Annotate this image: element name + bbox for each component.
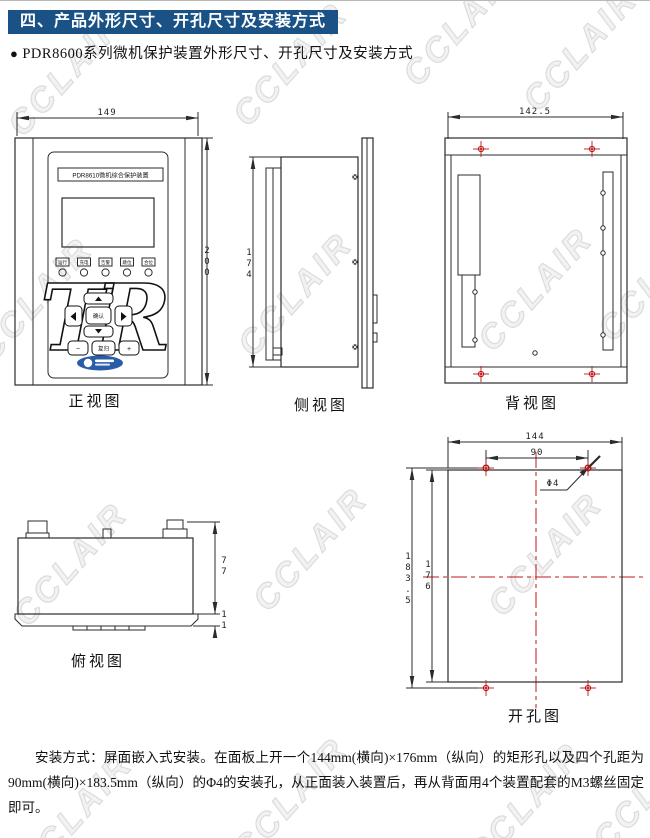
intro-text: PDR8600系列微机保护装置外形尺寸、开孔尺寸及安装方式 (22, 46, 413, 62)
dim-77-label: 77 (219, 556, 228, 578)
brand-emblem-icon (84, 359, 92, 367)
top-view-drawing (15, 505, 240, 640)
panel-cutout-rect (448, 470, 622, 682)
led-label-5: 合位 (144, 259, 153, 266)
terminal-block-left (26, 521, 49, 538)
centerlines (423, 452, 647, 708)
side-view-drawing (245, 130, 385, 392)
terminal-cutout-right (601, 172, 613, 350)
device-body (18, 538, 193, 614)
mount-hole-icon (584, 366, 600, 382)
dimension-depth-77 (187, 522, 220, 614)
cutout-figure: 144 90 Φ4 (395, 428, 650, 725)
intro-line: ●PDR8600系列微机保护装置外形尺寸、开孔尺寸及安装方式 (10, 42, 413, 63)
mounting-clip (373, 333, 377, 342)
cutout-view-label: 开孔图 (455, 705, 615, 726)
terminal-block-right (163, 520, 187, 538)
dim-176-label: 176 (423, 560, 432, 593)
terminal-cutout-left (458, 175, 480, 347)
front-bezel (15, 614, 198, 626)
led-label-1: 运行 (58, 259, 67, 266)
dim-90-label: 90 (531, 448, 544, 458)
top-view-figure (15, 505, 240, 645)
device-body (281, 157, 358, 367)
dim-149-label: 149 (97, 108, 116, 118)
page-top-rule (0, 0, 650, 1)
dim-144-label: 144 (525, 432, 544, 442)
side-view-label: 侧视图 (251, 394, 391, 415)
dim-142-5-label: 142.5 (519, 107, 551, 117)
back-view-label: 背视图 (432, 392, 632, 413)
ground-hole (533, 351, 537, 355)
bullet-icon: ● (10, 46, 18, 61)
side-view-figure (245, 130, 385, 397)
screw-icon (352, 344, 357, 349)
screw-icon (352, 174, 357, 179)
dim-11-label: 11 (219, 610, 228, 632)
section-title-banner: 四、产品外形尺寸、开孔尺寸及安装方式 (8, 10, 338, 34)
plus-key-label: + (127, 346, 131, 353)
mount-hole-icon (473, 366, 489, 382)
led-label-4: 跳位 (123, 259, 132, 266)
mount-holes (478, 460, 596, 696)
front-view-figure: TR (10, 100, 220, 397)
dim-200-label: 200 (202, 246, 211, 279)
front-view-label: 正视图 (0, 390, 191, 411)
center-tab (103, 529, 111, 538)
manual-page: CCLAIR CCLAIR CCLAIR CCLAIR CCLAIR CCLAI… (0, 0, 650, 838)
panel-title: PDR8610微机综合保护装置 (72, 172, 148, 180)
dim-174-label: 174 (244, 248, 253, 281)
hole-dia-label: Φ4 (547, 479, 560, 489)
lcd-screen (62, 198, 154, 247)
mount-hole-icon (478, 460, 494, 476)
installation-instructions: 安装方式：屏面嵌入式安装。在面板上开一个144mm(横向)×176mm（纵向）的… (8, 745, 644, 820)
screw-icon (352, 259, 357, 264)
back-view-drawing: 142.5 (440, 103, 640, 395)
cutout-drawing: 144 90 Φ4 (395, 428, 650, 720)
dim-183-5-label: 183.5 (403, 552, 412, 607)
reset-key-label: 复归 (98, 345, 109, 353)
led-label-2: 充电 (80, 259, 89, 266)
back-view-figure: 142.5 (440, 103, 640, 400)
front-view-drawing: TR (10, 100, 220, 392)
dimension-hole-span-183-5 (406, 468, 483, 688)
mounting-clip (373, 295, 377, 323)
top-view-label: 俯视图 (18, 650, 178, 671)
minus-key-label: − (76, 346, 80, 353)
brand-logo (77, 356, 123, 371)
confirm-key-label: 确认 (93, 312, 105, 320)
led-label-3: 告警 (101, 259, 110, 266)
